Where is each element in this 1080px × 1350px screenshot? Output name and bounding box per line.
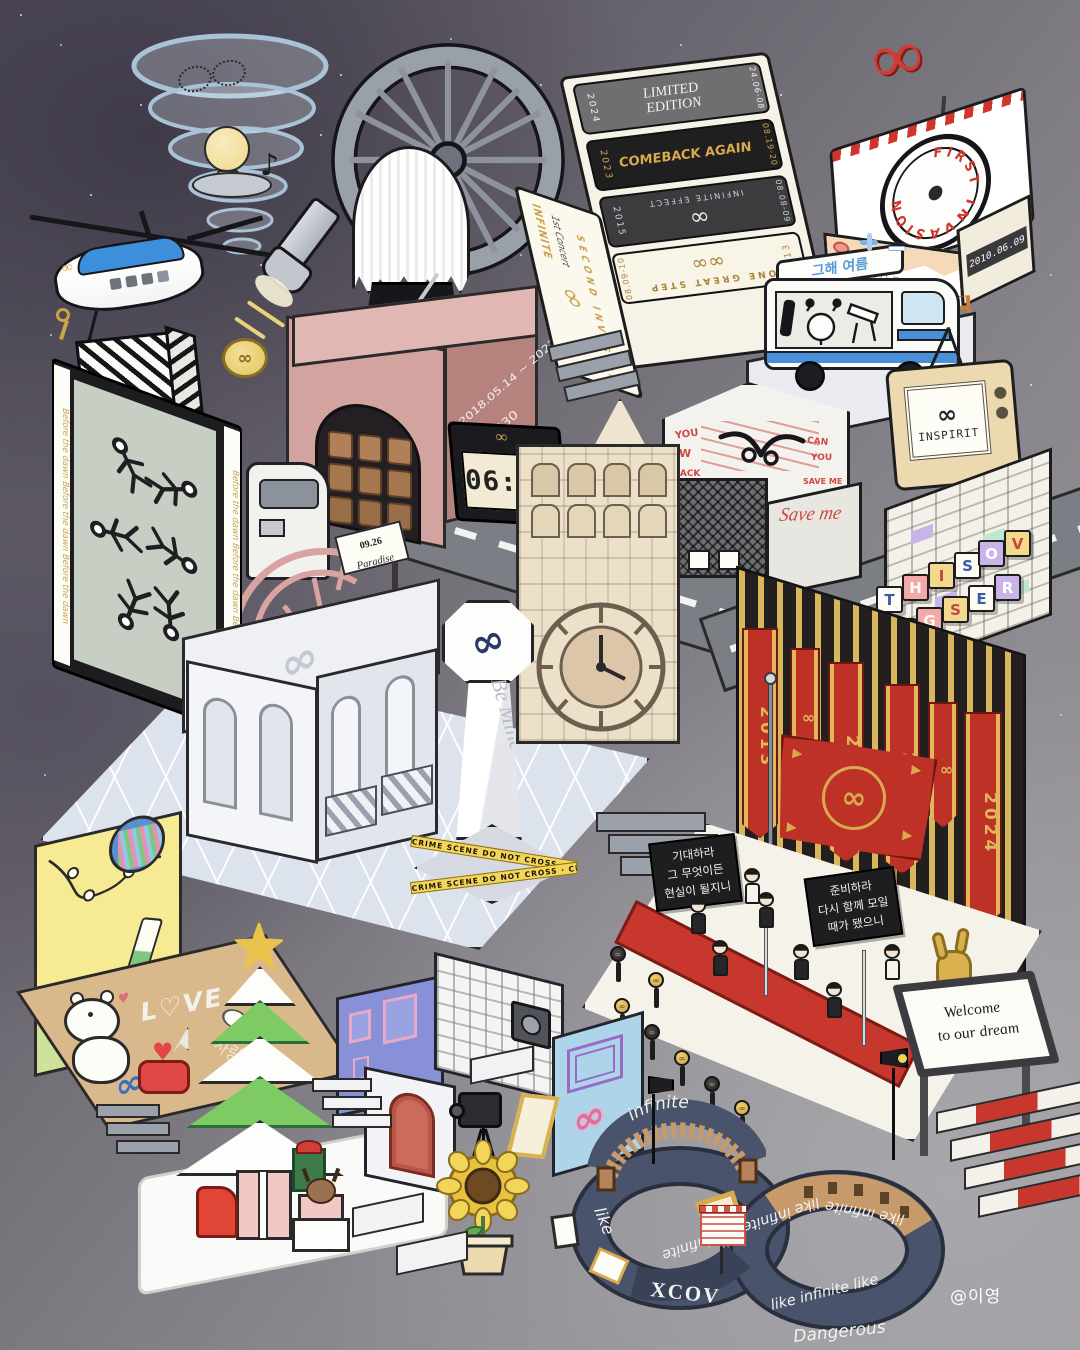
- member-figure: [712, 940, 729, 980]
- lightbulb-icon: [204, 126, 250, 172]
- member-figure: [690, 898, 707, 938]
- small-red-sign: [700, 1212, 746, 1246]
- ticket-logo: ∞: [686, 201, 712, 231]
- train-windshield: [259, 479, 319, 509]
- artist-signature: @이영: [950, 1282, 1001, 1307]
- member-figure: [826, 982, 843, 1022]
- tv-screen: ∞ INSPIRIT: [904, 380, 992, 461]
- gold-coin-rings: ∞: [222, 338, 268, 378]
- spotlight-stand: [652, 1094, 655, 1164]
- stair: [96, 1104, 160, 1118]
- van-mural: [775, 291, 893, 349]
- stair: [116, 1140, 180, 1154]
- tv-infinity-logo: ∞: [936, 399, 958, 429]
- train-seats: [328, 430, 412, 531]
- starfield: [20, 14, 22, 16]
- teddy-bear: [62, 998, 136, 1086]
- paradise-date: 09.26: [359, 536, 383, 552]
- lightstick: ∞: [610, 946, 626, 982]
- be-mine-text: Be Mine: [485, 675, 530, 753]
- tv-label: INSPIRIT: [918, 425, 980, 443]
- obelisk-shaft: Be Mine: [450, 680, 528, 840]
- letter-block: H: [902, 574, 929, 601]
- tv-knob: [996, 406, 1009, 419]
- presents: [196, 1166, 356, 1256]
- stage-sign-right: 준비하라 다시 함께 모일 때가 됐으니: [804, 866, 904, 947]
- letter-block: S: [954, 552, 981, 579]
- music-note-icon: ♪: [260, 148, 279, 183]
- billboard-border-text-left: Before the dawn Before the dawn Before t…: [54, 364, 70, 666]
- ticket-brand: INFINITE: [529, 202, 554, 261]
- van-body: [764, 278, 960, 370]
- heart-icon: ♥: [152, 1038, 174, 1066]
- isometric-fanart-scene: ♪ ∞ ∞: [0, 0, 1080, 1350]
- van-windshield: [901, 291, 945, 325]
- tower-spire: [592, 398, 648, 450]
- lightstick: ∞: [644, 1024, 660, 1060]
- pinwheel-icon: [867, 233, 872, 251]
- letter-block: V: [1004, 530, 1031, 557]
- lightstick: ∞: [648, 972, 664, 1008]
- pinwheel-icon: [888, 246, 906, 251]
- year-banner: 2024: [964, 712, 1002, 926]
- letter-block: E: [968, 585, 995, 612]
- member-figure-white-suit: [884, 944, 901, 984]
- sign-stand: [720, 1246, 723, 1274]
- coin-infinity: ∞: [238, 348, 253, 369]
- save-me-text: Save me: [778, 502, 844, 527]
- winged-eye-emblem: [711, 425, 811, 469]
- ticket-title: COMEBACK AGAIN: [609, 138, 762, 171]
- sign-pole: [862, 950, 866, 1046]
- spotlight-stand: [892, 1068, 895, 1160]
- key-stem: [59, 320, 69, 340]
- stair: [106, 1122, 170, 1136]
- obelisk-infinity: ∞: [465, 615, 511, 669]
- flag-crest-infinity: ∞: [840, 779, 869, 816]
- graffiti-word: SAVE ME: [803, 477, 842, 486]
- stage-stair: [596, 812, 706, 832]
- van-roof-text: 그해 여름: [812, 253, 868, 281]
- letter-block: I: [928, 562, 955, 589]
- letter-block: R: [994, 574, 1021, 601]
- tower-arches: [531, 463, 667, 538]
- letter-block: S: [942, 596, 969, 623]
- arch-tunnel: [315, 394, 421, 545]
- obelisk-head: ∞: [442, 600, 534, 684]
- stair: [322, 1096, 382, 1110]
- ticket-logo: ∞∞: [689, 250, 728, 277]
- member-figure: [793, 944, 810, 984]
- camera-body: [458, 1092, 502, 1128]
- stair: [312, 1078, 372, 1092]
- flag-pole-top: [764, 672, 777, 685]
- tv-knob: [994, 386, 1007, 399]
- train-door: [259, 519, 285, 537]
- van-stripe: [767, 351, 957, 363]
- flag-crest: ∞: [819, 763, 889, 833]
- stair: [332, 1114, 392, 1128]
- be-mine-obelisk: ∞ Be Mine CRIME SCENE DO NOT CROSS · CRI…: [414, 600, 574, 910]
- light-ray: [234, 316, 266, 339]
- paradise-name: Paradise: [356, 552, 395, 572]
- letter-block: O: [978, 540, 1005, 567]
- debut-date-plate: 2010.06.09: [966, 226, 1028, 277]
- infinite-arch-bridge: infinite: [586, 1064, 766, 1194]
- infinity-balloon: ∞: [865, 14, 928, 101]
- band-van: 그해 여름: [764, 252, 960, 374]
- member-figure-white-suit: [744, 868, 761, 908]
